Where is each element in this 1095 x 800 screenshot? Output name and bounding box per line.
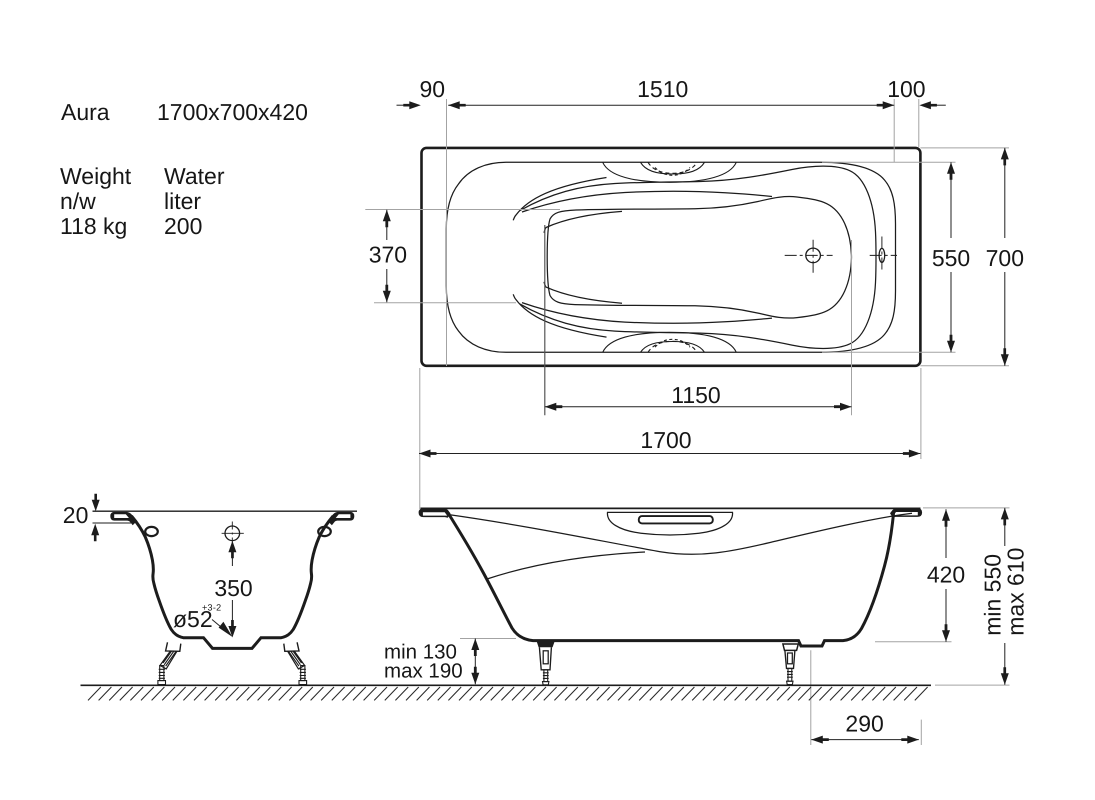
svg-text:350: 350 — [214, 575, 252, 601]
svg-text:700: 700 — [986, 245, 1024, 271]
svg-text:liter: liter — [164, 188, 201, 214]
svg-text:550: 550 — [932, 245, 970, 271]
svg-text:20: 20 — [63, 502, 89, 528]
svg-text:Weight: Weight — [60, 163, 132, 189]
svg-text:200: 200 — [164, 213, 202, 239]
svg-text:100: 100 — [887, 76, 925, 102]
svg-text:Aura: Aura — [61, 99, 110, 125]
svg-text:1700: 1700 — [640, 427, 691, 453]
svg-text:420: 420 — [927, 562, 965, 588]
svg-text:1510: 1510 — [637, 76, 688, 102]
svg-text:Water: Water — [164, 163, 225, 189]
svg-text:n/w: n/w — [60, 188, 96, 214]
svg-text:+3-2: +3-2 — [202, 603, 221, 613]
svg-text:290: 290 — [845, 711, 883, 737]
svg-text:118 kg: 118 kg — [60, 213, 127, 239]
svg-text:370: 370 — [369, 242, 407, 268]
svg-text:1150: 1150 — [671, 382, 720, 408]
svg-text:1700x700x420: 1700x700x420 — [157, 99, 308, 125]
svg-text:max 610: max 610 — [1003, 548, 1029, 636]
svg-text:90: 90 — [420, 76, 446, 102]
svg-text:max 190: max 190 — [384, 660, 463, 683]
